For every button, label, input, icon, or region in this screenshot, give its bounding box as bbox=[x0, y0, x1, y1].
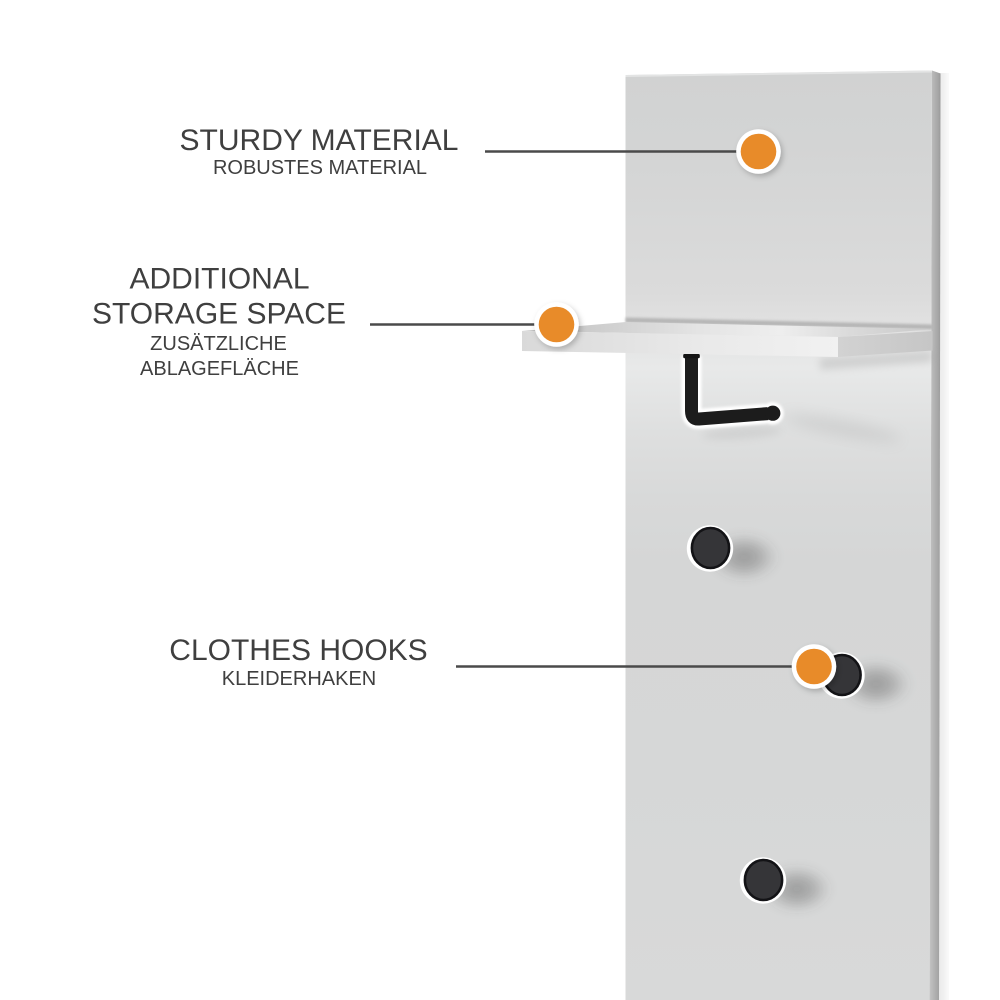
svg-text:STORAGE SPACE: STORAGE SPACE bbox=[92, 298, 346, 331]
svg-text:ROBUSTES MATERIAL: ROBUSTES MATERIAL bbox=[213, 157, 427, 179]
svg-text:ADDITIONAL: ADDITIONAL bbox=[129, 263, 309, 296]
svg-text:CLOTHES HOOKS: CLOTHES HOOKS bbox=[169, 634, 427, 667]
svg-text:STURDY MATERIAL: STURDY MATERIAL bbox=[180, 124, 459, 157]
svg-text:KLEIDERHAKEN: KLEIDERHAKEN bbox=[222, 668, 377, 690]
svg-text:ABLAGEFLÄCHE: ABLAGEFLÄCHE bbox=[140, 358, 299, 380]
svg-text:ZUSÄTZLICHE: ZUSÄTZLICHE bbox=[150, 333, 287, 355]
